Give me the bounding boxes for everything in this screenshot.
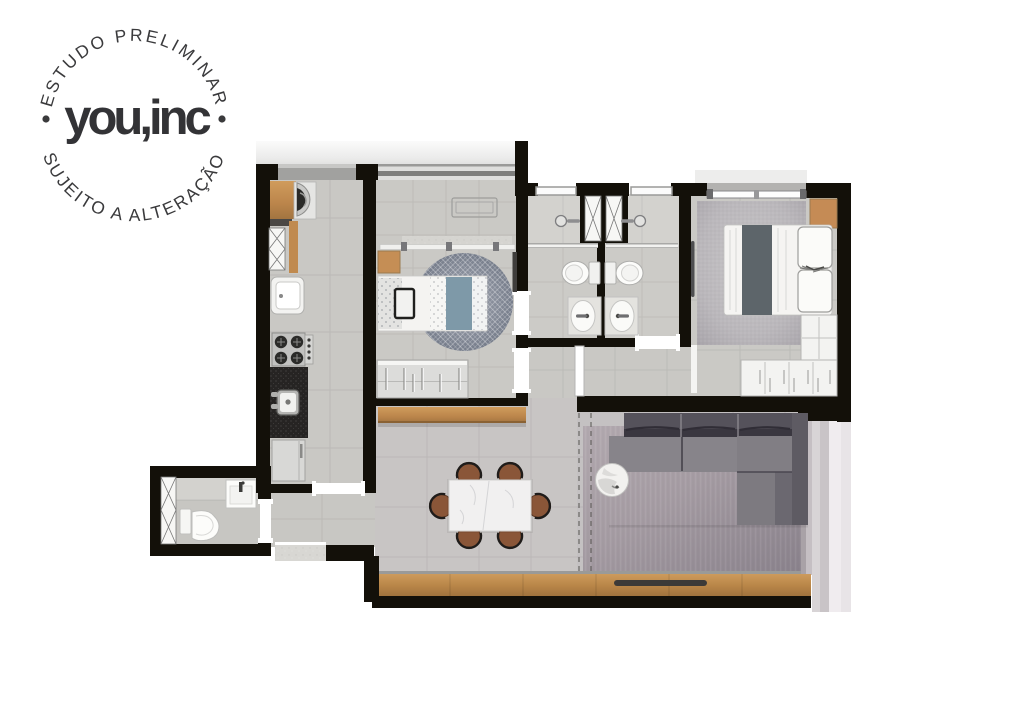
svg-text:you,inc: you,inc — [64, 91, 210, 145]
